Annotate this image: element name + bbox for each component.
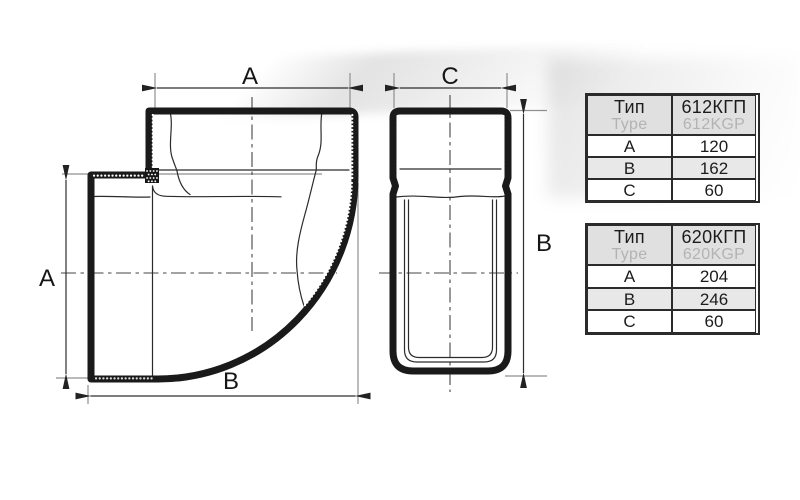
elbow-outline — [91, 111, 355, 379]
type-label-ru: Тип — [614, 228, 645, 246]
type-header-cell: Тип Type — [587, 95, 672, 135]
param-cell-c: C — [587, 179, 672, 201]
interior-edge-line — [92, 196, 150, 197]
dim-label-b-right: B — [536, 230, 552, 257]
spec-table-620: Тип Type 620КГП 620KGP A 204 B 246 C 60 — [585, 223, 760, 335]
type-label-en: Type — [612, 117, 648, 133]
break-line-right — [297, 112, 322, 306]
value-cell-a: 204 — [672, 265, 756, 288]
front-view: C B — [379, 63, 552, 392]
param-cell-c: C — [587, 310, 672, 333]
side-view: A A B — [39, 63, 358, 404]
param-cell-a: A — [587, 135, 672, 157]
throat-edge-line — [153, 186, 282, 197]
model-label-ru: 620КГП — [681, 228, 746, 246]
param-cell-a: A — [587, 265, 672, 288]
catalog-drawing-page: A A B — [0, 0, 800, 500]
type-label-ru: Тип — [614, 98, 645, 116]
model-header-cell: 620КГП 620KGP — [672, 225, 756, 265]
param-cell-b: B — [587, 288, 672, 310]
dim-label-b-bottom: B — [223, 368, 239, 395]
dim-label-c-top: C — [441, 63, 458, 90]
value-cell-b: 162 — [672, 157, 756, 179]
value-cell-c: 60 — [672, 179, 756, 201]
spec-table-612: Тип Type 612КГП 612KGP A 120 B 162 C 60 — [585, 93, 760, 203]
value-cell-c: 60 — [672, 310, 756, 333]
break-line-left — [170, 112, 190, 195]
value-cell-a: 120 — [672, 135, 756, 157]
model-label-ru: 612КГП — [681, 98, 746, 116]
model-label-en: 612KGP — [683, 117, 745, 133]
type-label-en: Type — [612, 247, 648, 263]
param-cell-b: B — [587, 157, 672, 179]
dim-label-a-top: A — [242, 63, 258, 90]
model-header-cell: 612КГП 612KGP — [672, 95, 756, 135]
value-cell-b: 246 — [672, 288, 756, 310]
model-label-en: 620KGP — [683, 247, 745, 263]
dim-label-a-left: A — [39, 265, 55, 292]
type-header-cell: Тип Type — [587, 225, 672, 265]
break-line — [396, 196, 505, 198]
inner-wall-line-inner — [409, 200, 493, 358]
